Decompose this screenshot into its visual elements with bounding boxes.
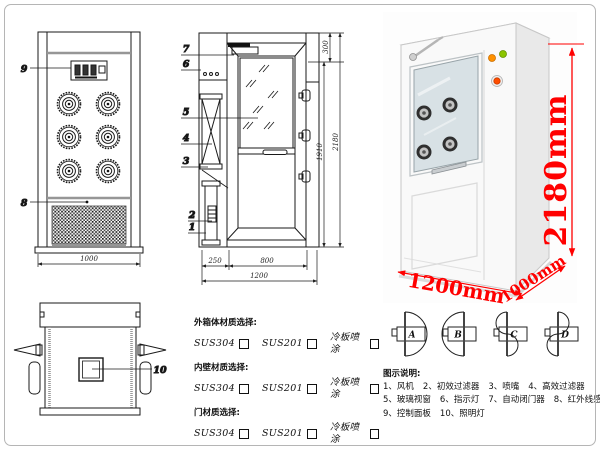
material-option-label: SUS304 [194,428,235,439]
legend-item: 6、指示灯 [440,395,479,405]
svg-text:250: 250 [207,257,222,265]
legend-item: 5、玻璃视窗 [383,395,431,405]
side-view: 7 6 5 4 3 2 1 300 1910 2180 250 [181,33,344,285]
legend-item: 2、初效过滤器 [423,382,479,392]
svg-text:B: B [453,331,462,341]
dim-depths: 250 800 1200 [202,250,317,285]
power-light [489,55,496,62]
dim-heights: 300 1910 2180 [308,33,344,247]
svg-text:A: A [408,331,416,341]
svg-text:300: 300 [322,40,330,54]
material-section-title: 内壁材质选择: [194,363,379,373]
photo-height-label: 2180mm [539,94,574,247]
callout-4: 4 [183,133,190,144]
air-nozzle [97,160,120,183]
material-option-label: SUS201 [262,428,303,439]
legend-item: 9、控制面板 [383,409,431,419]
door-config-diagrams: A B C D [392,312,578,356]
door-handle-left [29,362,40,394]
door-config-b: B [442,312,476,356]
filter-box [200,94,222,169]
callout-8: 8 [21,198,28,209]
air-nozzle [97,93,120,116]
material-checkbox [370,429,379,439]
legend-item: 8、红外线感应器 [554,395,600,405]
material-option-label: SUS304 [194,383,235,394]
material-options: 外箱体材质选择: SUS304 SUS201 冷板喷涂 内壁材质选择: SUS3… [194,318,379,453]
svg-text:1200: 1200 [250,272,268,280]
svg-text:1910: 1910 [316,143,324,161]
air-nozzle [58,160,81,183]
material-checkbox [307,384,317,394]
callout-1: 1 [189,222,196,233]
legend-item: 7、自动闭门器 [488,395,544,405]
callout-5: 5 [183,107,190,118]
material-section-title: 门材质选择: [194,408,379,418]
legend: 图示说明: 1、风机 2、初效过滤器 3、喷嘴 4、高效过滤器 5、玻璃视窗 6… [383,369,597,422]
glass-door [227,43,306,240]
material-section-title: 外箱体材质选择: [194,318,379,328]
material-option-label: SUS201 [262,338,303,349]
door-hinges [299,90,310,182]
run-light [500,51,507,58]
material-checkbox [370,384,379,394]
svg-text:800: 800 [260,257,274,265]
door-pull [263,150,287,155]
material-checkbox [239,384,249,394]
door-config-a: A [392,312,427,356]
material-option-label: SUS201 [262,383,303,394]
material-option-label: 冷板喷涂 [330,422,366,445]
legend-item: 4、高效过滤器 [528,382,584,392]
base [35,247,143,253]
callout-9: 9 [21,64,28,75]
air-nozzle [58,126,81,149]
callout-6: 6 [183,59,190,70]
material-checkbox [307,339,317,349]
door-config-c: C [494,312,527,356]
emergency-button [492,76,503,87]
material-checkbox [370,339,379,349]
air-nozzle [58,93,81,116]
control-panel [71,61,107,80]
svg-text:D: D [560,331,569,341]
callout-10: 10 [153,365,167,376]
material-checkbox [307,429,317,439]
door-glass [240,58,293,148]
top-view: 10 [14,303,167,415]
intake-grille [52,206,126,244]
svg-text:1000: 1000 [80,255,98,263]
door-handle-right [140,362,151,394]
door-closer [228,43,250,47]
legend-item: 1、风机 [383,382,414,392]
material-checkbox [239,339,249,349]
svg-text:C: C [510,331,518,341]
nozzle-array [58,93,120,183]
material-checkbox [239,429,249,439]
callout-3: 3 [183,156,190,167]
material-option-label: 冷板喷涂 [330,377,366,400]
glass-hatch [243,65,278,129]
callout-7: 7 [183,44,190,55]
dim-front-width: 1000 [38,254,140,267]
legend-title: 图示说明: [383,369,597,379]
front-view: 9 8 1000 [21,32,143,267]
material-option-label: 冷板喷涂 [330,332,366,355]
callout-2: 2 [188,210,196,221]
lower-unit [202,181,220,245]
air-nozzle [97,126,120,149]
svg-text:2180: 2180 [332,133,340,152]
legend-item: 10、照明灯 [440,409,485,419]
legend-item: 3、喷嘴 [488,382,519,392]
door-config-d: D [545,312,578,356]
material-option-label: SUS304 [194,338,235,349]
photo-3d: 2180mm 1200mm 1000mm [383,12,584,308]
